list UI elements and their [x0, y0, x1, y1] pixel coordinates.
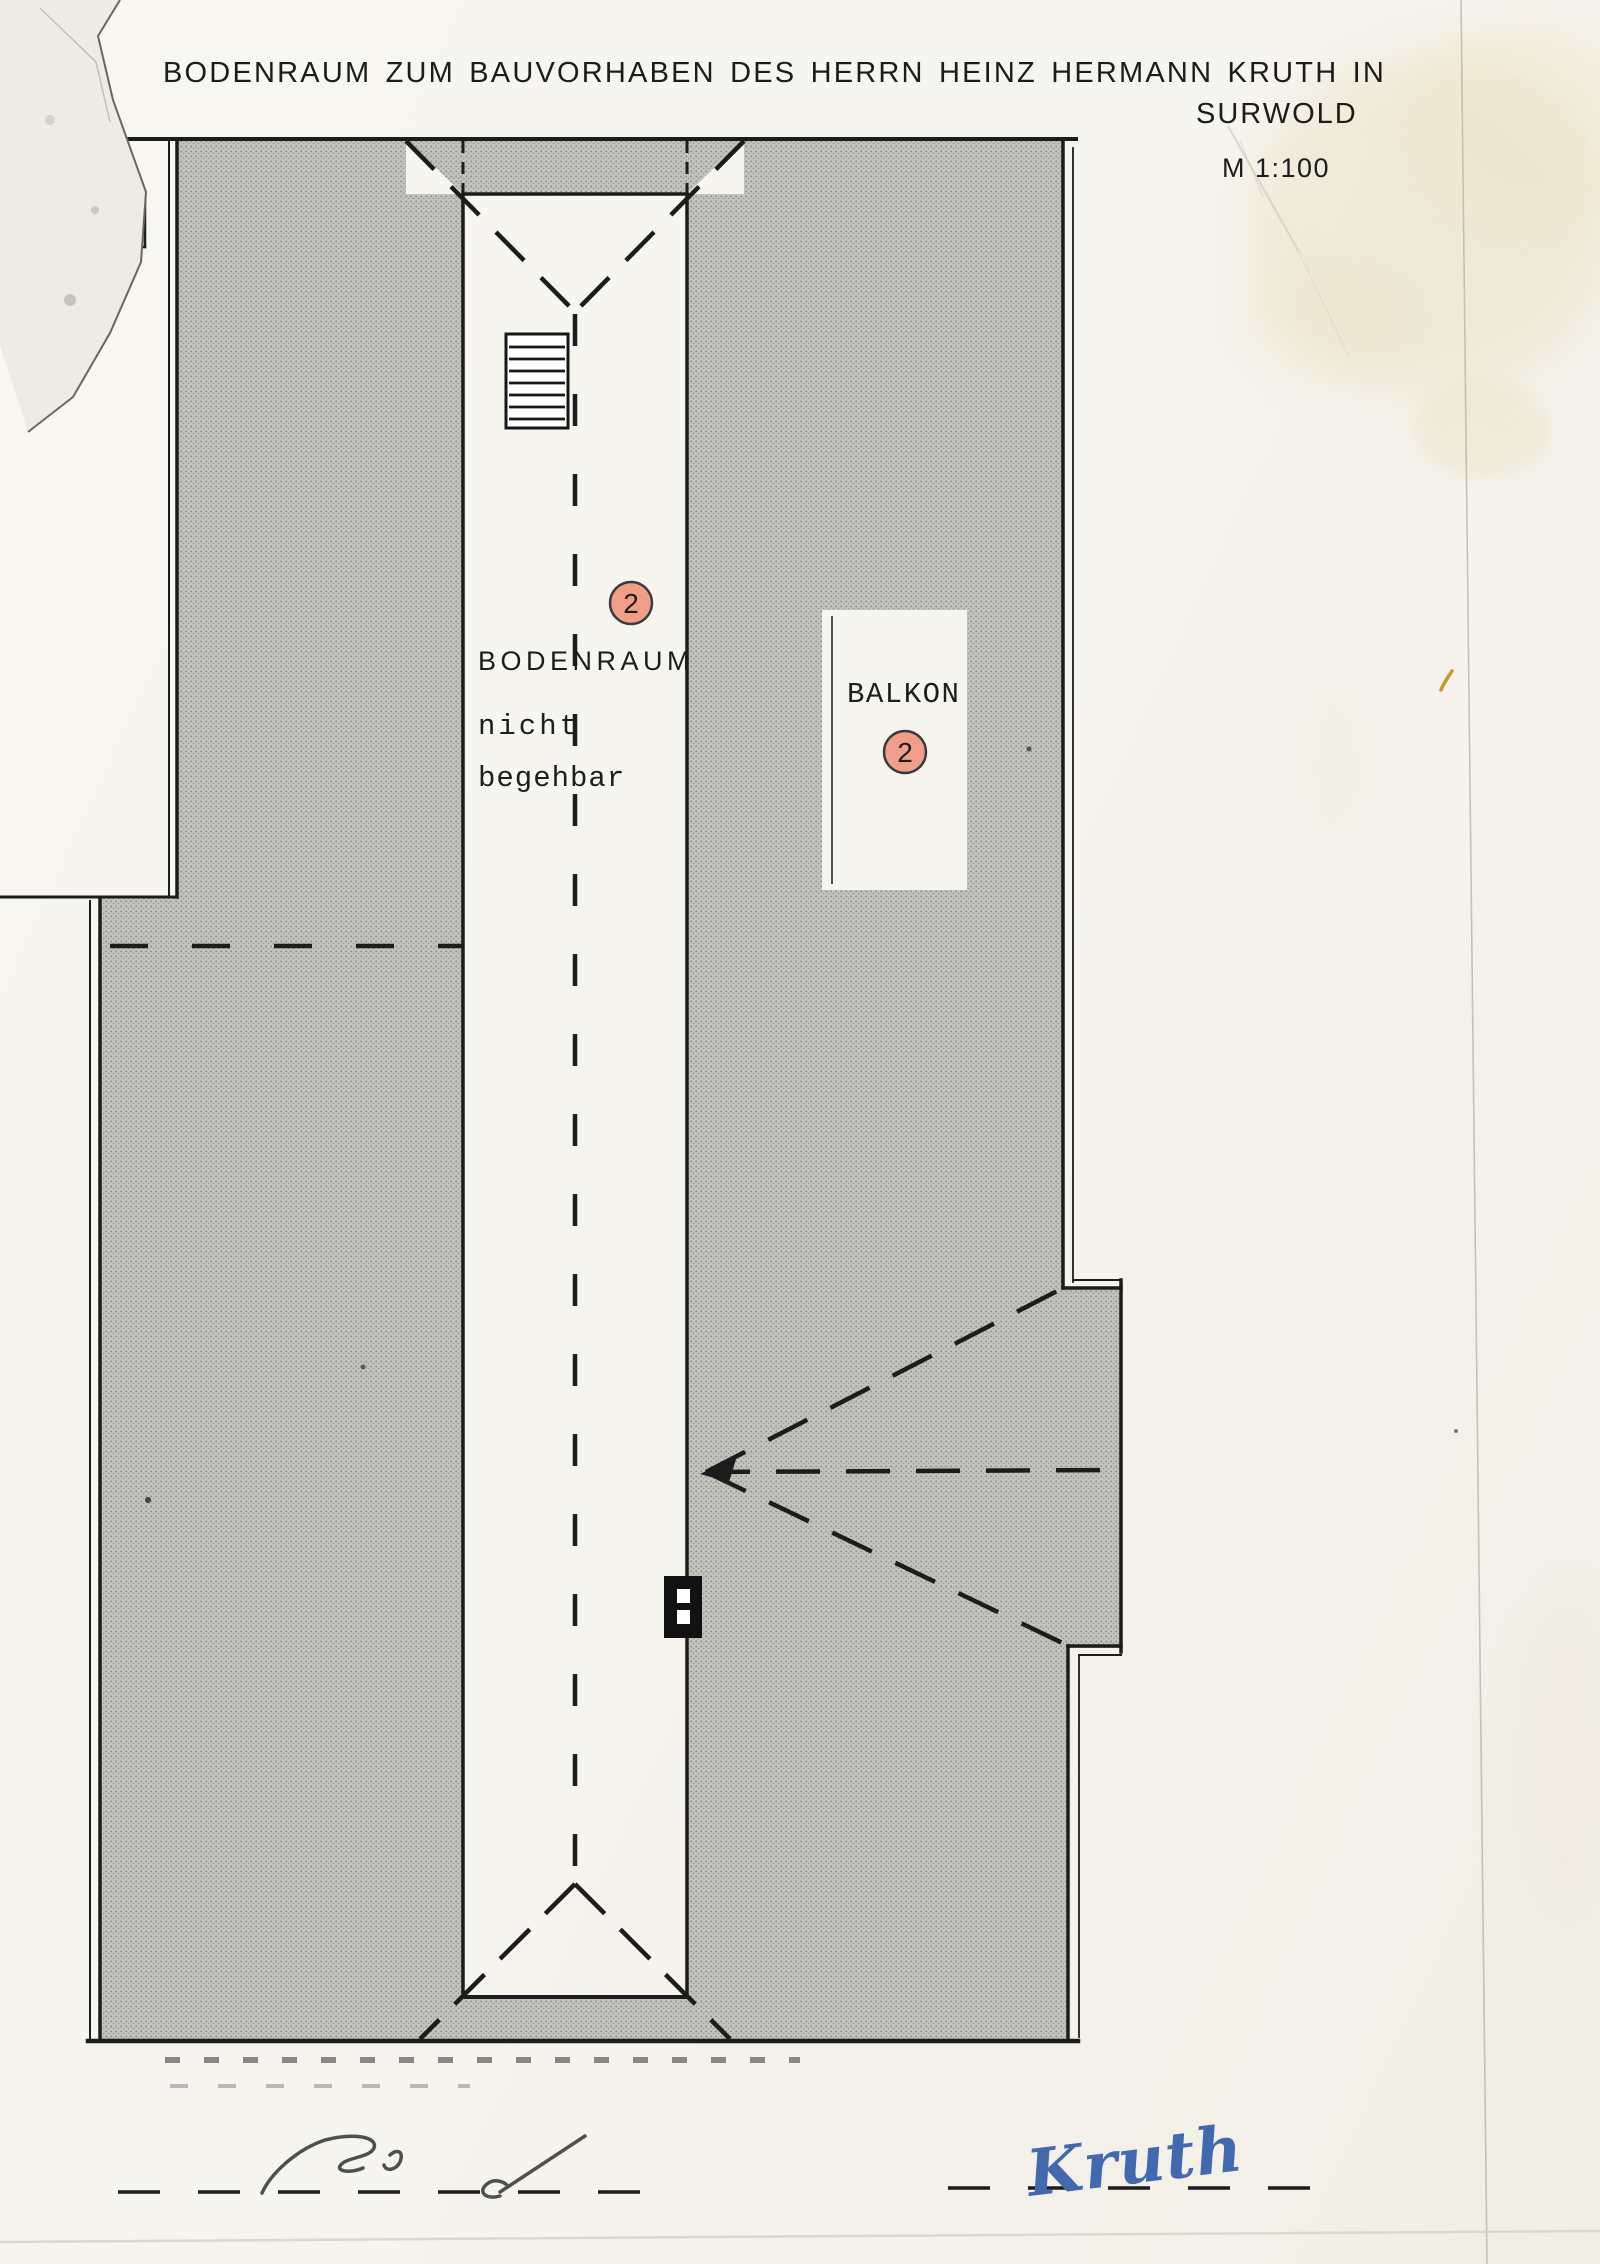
drawing-title: BODENRAUM ZUM BAUVORHABEN DES HERRN HEIN…: [163, 57, 1386, 89]
orange-tick-mark: [1441, 671, 1452, 690]
paper-stains: [1240, 20, 1600, 1930]
drawing-scale: M 1:100: [1222, 153, 1330, 183]
owner-signature: Kruth: [1021, 2111, 1247, 2212]
attic-marker-number: 2: [623, 588, 639, 619]
balcony-label: BALKON: [847, 678, 960, 711]
scan-fold-dashes: [165, 2060, 800, 2086]
pencil-signature-scribble: [262, 2136, 585, 2197]
attic-note-line1: nicht: [478, 710, 580, 743]
plan-drawing: [0, 139, 1121, 2086]
drawing-title-place: SURWOLD: [1196, 98, 1358, 130]
attic-note-line2: begehbar: [478, 762, 625, 795]
balcony-marker-number: 2: [897, 737, 913, 768]
attic-room-label: BODENRAUM: [478, 646, 694, 676]
attic-marker-badge: 2: [610, 582, 652, 624]
scanned-floor-plan: BODENRAUM nicht begehbar BALKON 2 2 BODE…: [0, 0, 1600, 2264]
roof-surface: [99, 139, 1121, 2041]
balcony-marker-badge: 2: [884, 731, 926, 773]
chimney: [506, 334, 568, 428]
signature-area: Kruth: [118, 2111, 1345, 2212]
hatch-door-symbol: [664, 1576, 702, 1638]
folded-corner-artifact: [0, 0, 146, 432]
